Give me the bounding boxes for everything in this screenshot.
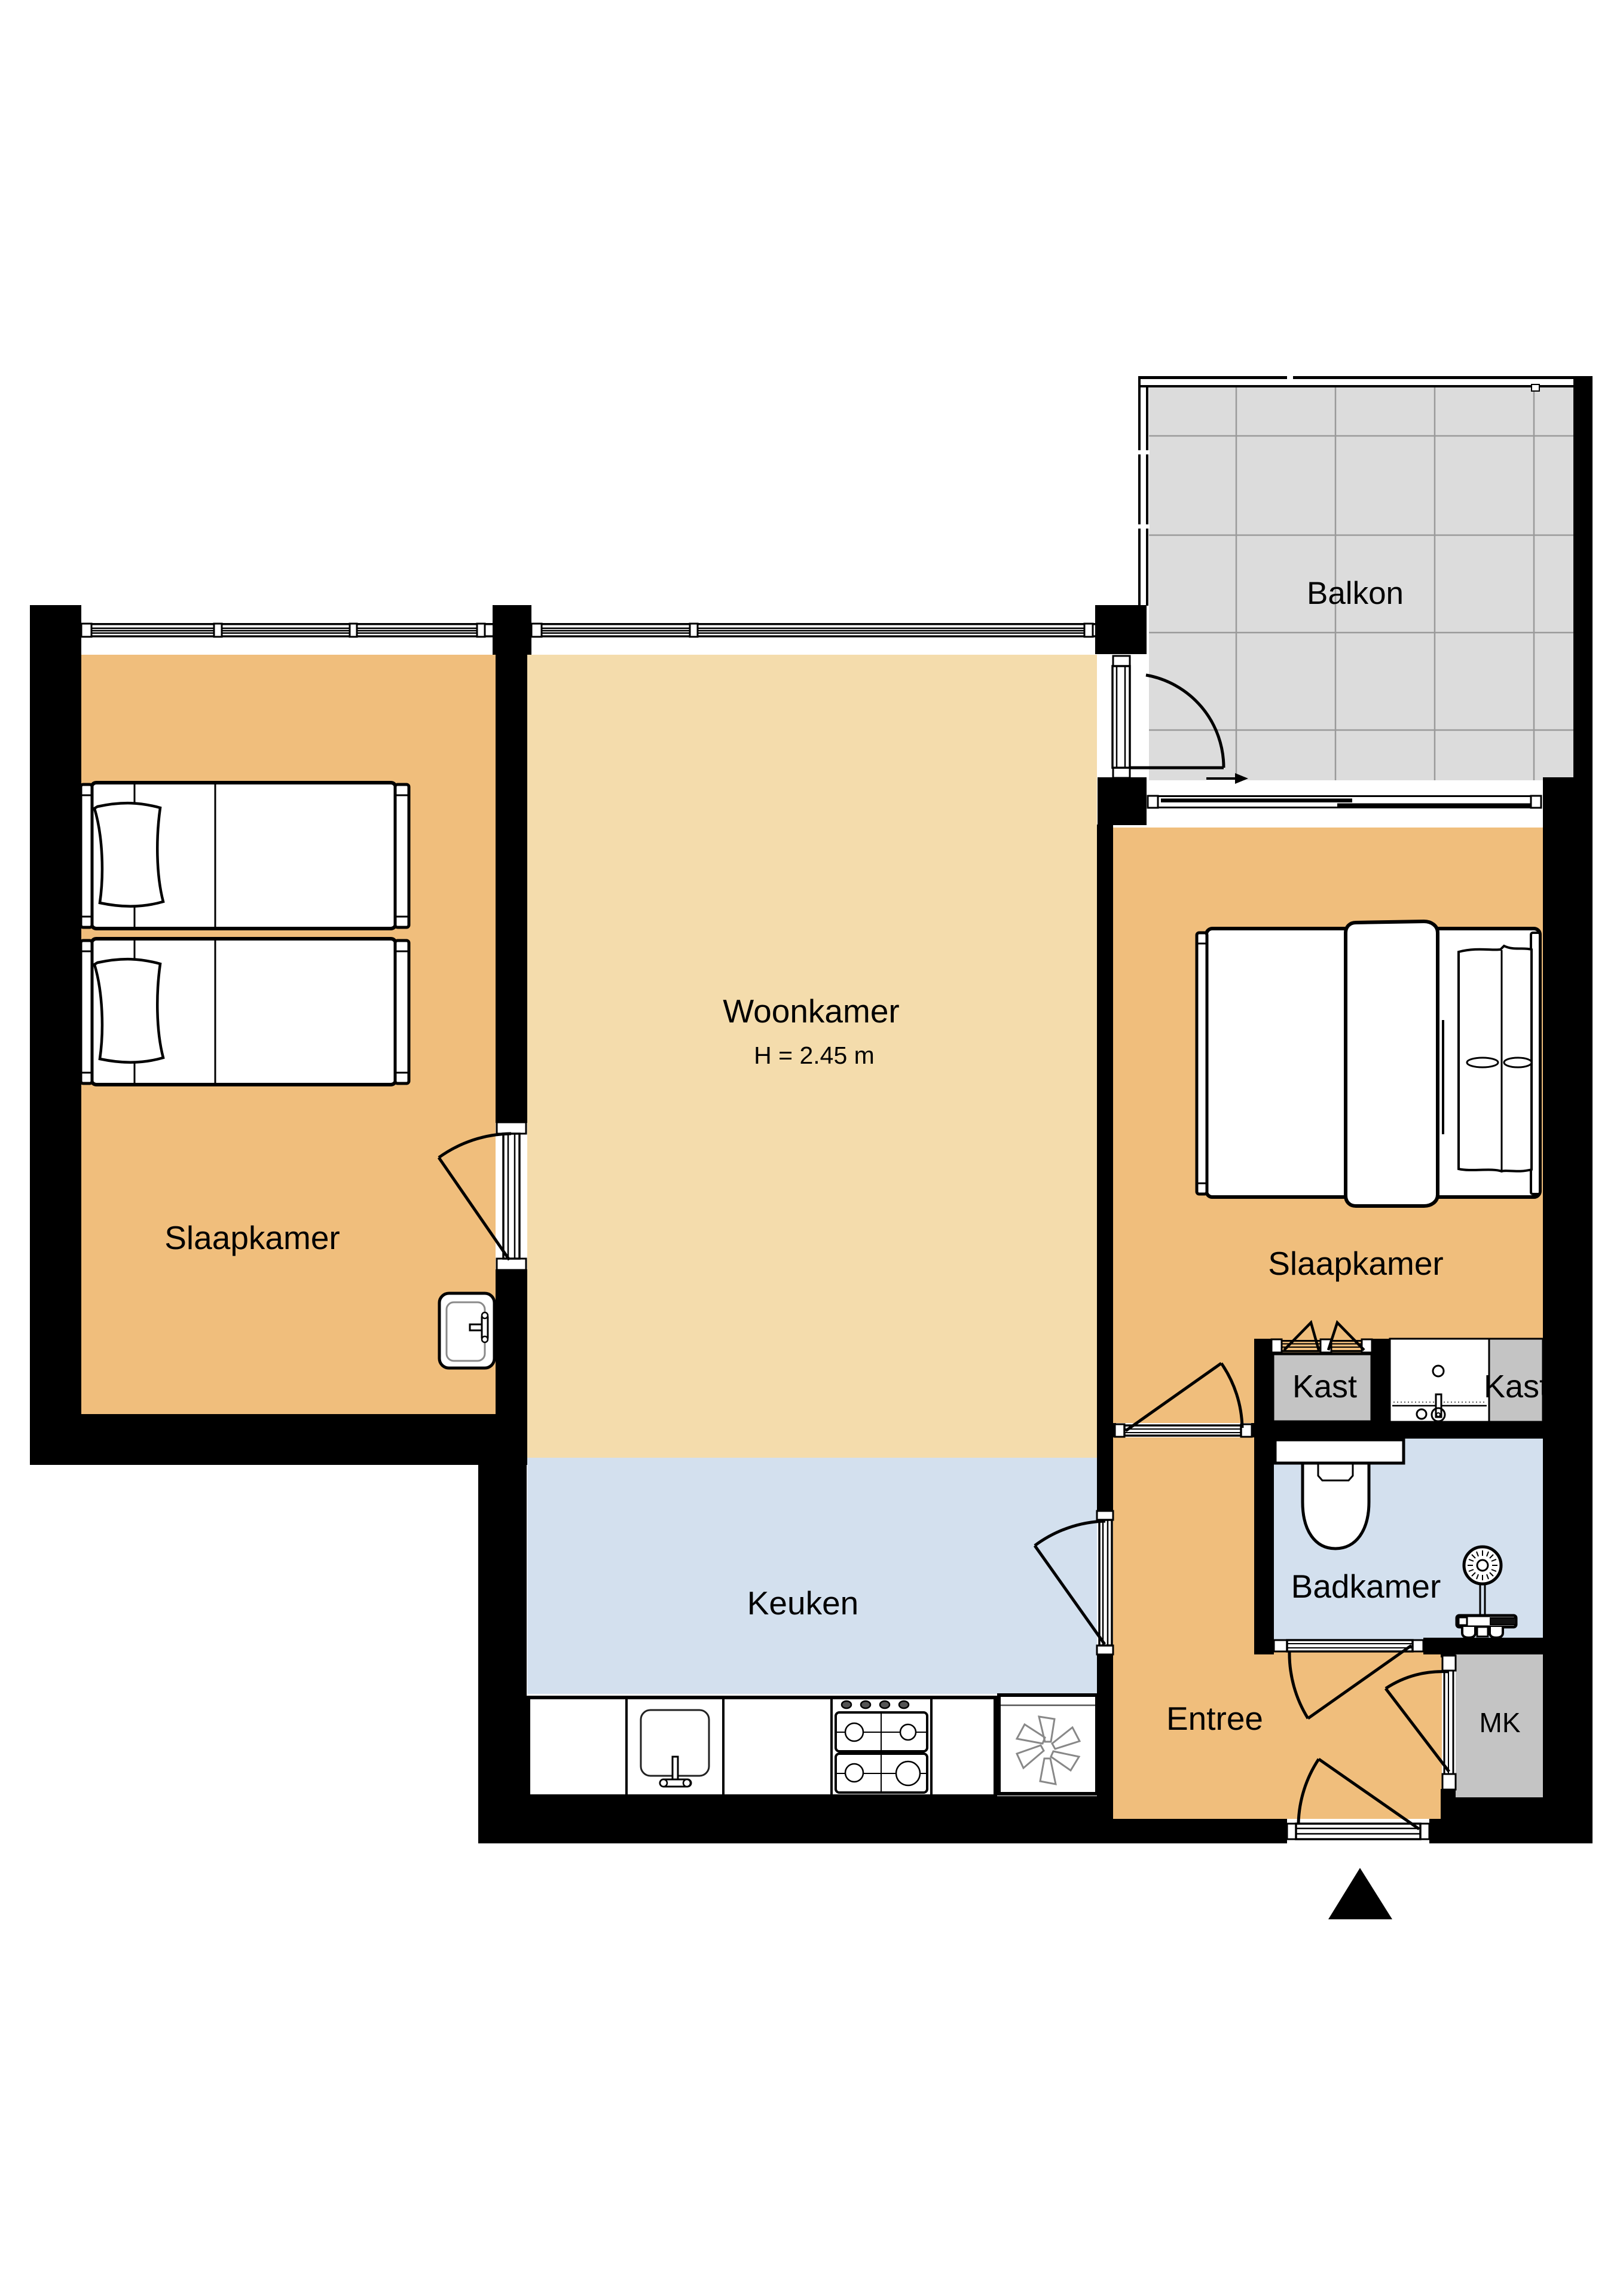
- svg-text:Slaapkamer: Slaapkamer: [1268, 1245, 1443, 1282]
- svg-text:Kast: Kast: [1484, 1369, 1548, 1405]
- svg-text:Woonkamer: Woonkamer: [723, 993, 900, 1030]
- svg-text:Kast: Kast: [1292, 1369, 1357, 1405]
- svg-text:Badkamer: Badkamer: [1291, 1568, 1441, 1605]
- svg-text:Keuken: Keuken: [747, 1584, 859, 1622]
- svg-text:MK: MK: [1480, 1707, 1521, 1738]
- svg-text:Entree: Entree: [1166, 1700, 1263, 1737]
- svg-text:H = 2.45 m: H = 2.45 m: [754, 1042, 875, 1069]
- svg-text:Slaapkamer: Slaapkamer: [164, 1219, 340, 1256]
- svg-text:Balkon: Balkon: [1307, 576, 1404, 611]
